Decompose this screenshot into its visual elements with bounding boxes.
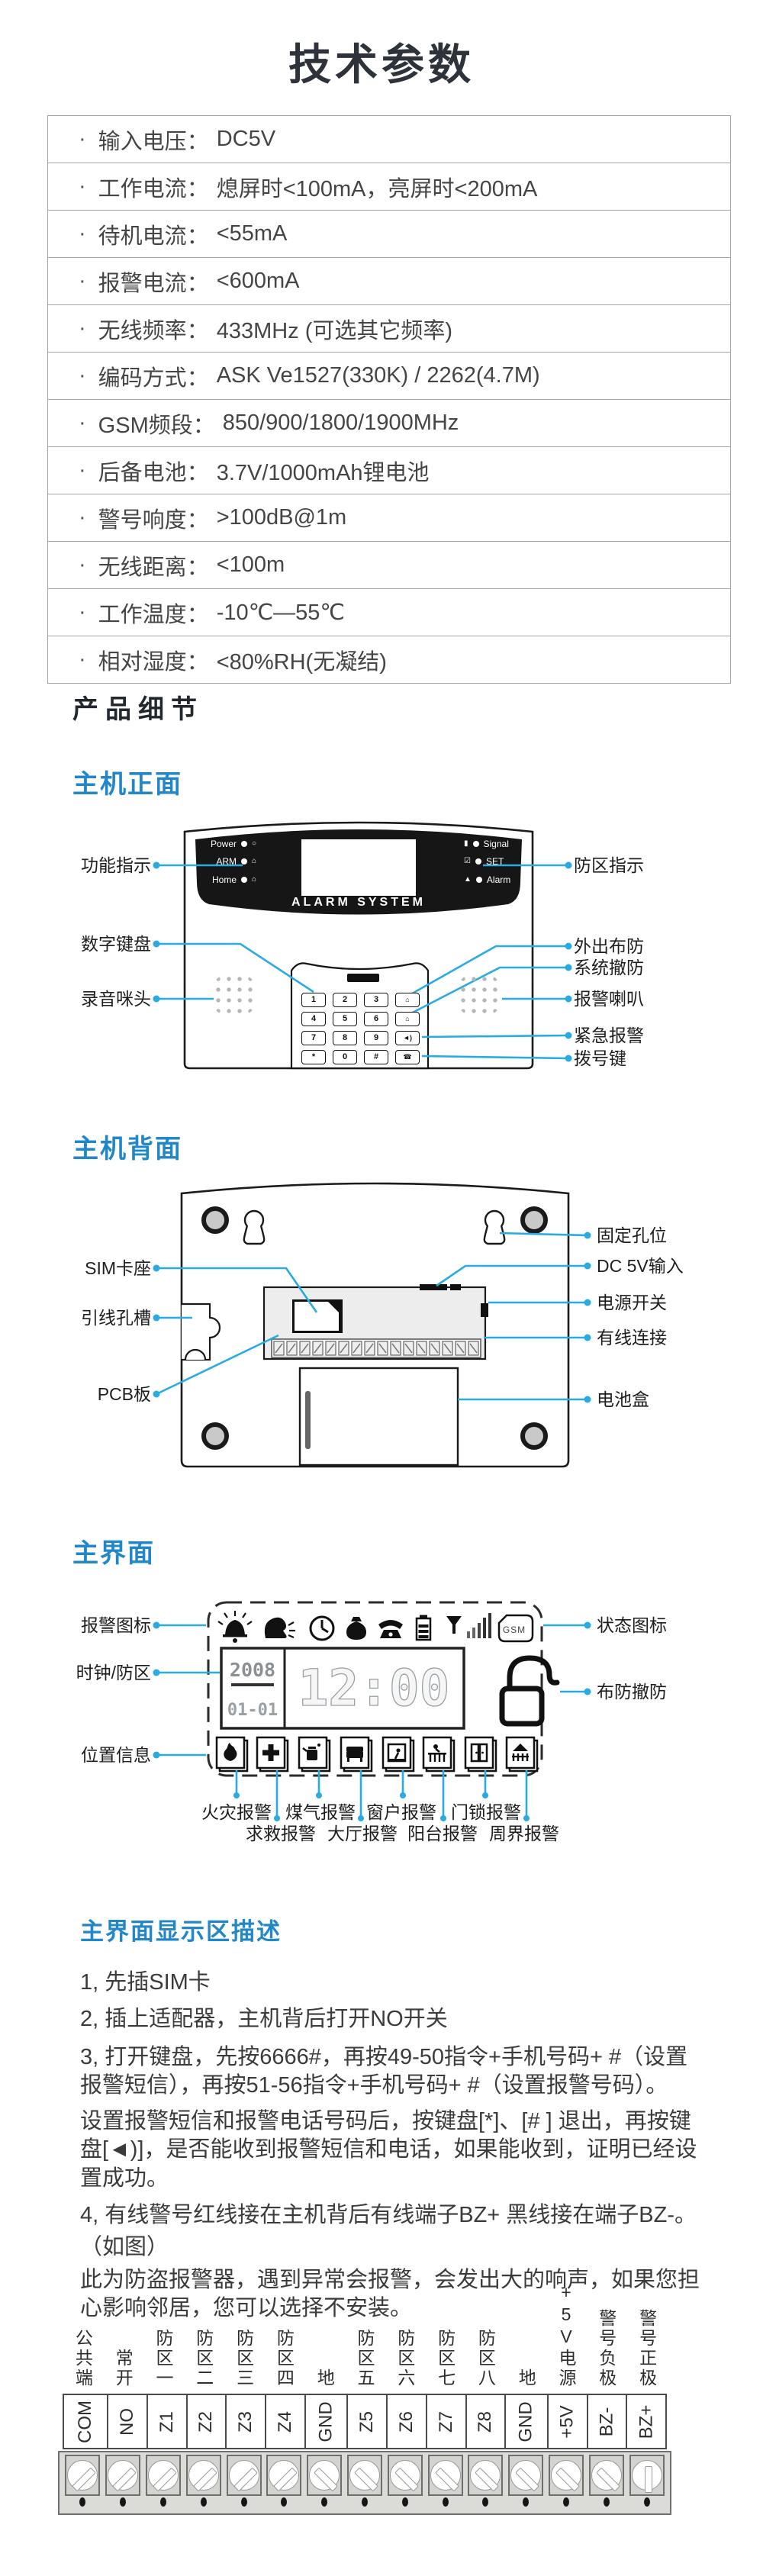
terminal-screw xyxy=(428,2455,463,2496)
right-speaker-grille xyxy=(456,971,503,1019)
screw-dot xyxy=(443,2497,449,2507)
terminal-cell: COM xyxy=(64,2395,107,2448)
terminal-screw xyxy=(388,2455,423,2496)
label-arm-disarm: 布防撤防 xyxy=(597,1682,667,1702)
keypad-key: ⌂ xyxy=(395,1012,420,1026)
terminal-cell: Z2 xyxy=(186,2395,226,2448)
terminal-screw xyxy=(347,2455,382,2496)
terminal-screw xyxy=(105,2455,140,2496)
home-led-dot xyxy=(241,877,247,883)
terminal-screw xyxy=(307,2455,342,2496)
screw-dot xyxy=(644,2497,650,2507)
terminal-cell: Z6 xyxy=(386,2395,426,2448)
spec-row: 报警电流：<600mA xyxy=(48,257,730,304)
spec-row: 无线频率：433MHz (可选其它频率) xyxy=(48,304,730,352)
terminal-screw xyxy=(146,2455,181,2496)
power-icon: ○ xyxy=(252,839,256,848)
terminal-cell: BZ- xyxy=(587,2395,626,2448)
brand-text: ALARM SYSTEM xyxy=(252,896,465,910)
set-led-dot xyxy=(475,858,481,865)
perimeter-zone-icon xyxy=(507,1737,537,1771)
terminal-cell: BZ+ xyxy=(626,2395,665,2448)
screw-dot xyxy=(604,2497,610,2507)
label-location-info: 位置信息 xyxy=(60,1745,151,1765)
hall-zone-icon xyxy=(341,1737,372,1771)
label-alarm-icons: 报警图标 xyxy=(60,1615,151,1635)
led-row-signal: ▮ Signal xyxy=(464,839,509,848)
terminal-code: Z2 xyxy=(195,2410,217,2432)
zone-label: 周界报警 xyxy=(482,1819,566,1845)
terminal-code: Z7 xyxy=(436,2410,457,2432)
spec-value: <100m xyxy=(217,552,285,578)
power-led-dot xyxy=(241,841,247,847)
fire-zone-icon xyxy=(217,1737,247,1771)
spec-label: 报警电流： xyxy=(98,266,209,298)
section-front-view: 主机正面 xyxy=(72,763,182,800)
terminal-cell: Z4 xyxy=(265,2395,304,2448)
terminal-cn-label: 防区一 xyxy=(153,2329,173,2388)
terminal-cn-label: 防区二 xyxy=(193,2329,214,2388)
sos-zone-icon xyxy=(257,1737,288,1771)
screw-dot xyxy=(241,2497,247,2507)
terminal-cn-label: 常开 xyxy=(112,2349,133,2388)
label-dc5v-input: DC 5V输入 xyxy=(597,1256,684,1276)
led-row-set: ☑ SET xyxy=(464,857,504,866)
label-power-switch: 电源开关 xyxy=(597,1293,667,1312)
spec-row: 警号响度：>100dB@1m xyxy=(48,494,730,541)
keypad-key: # xyxy=(364,1050,388,1064)
terminal-cell: Z1 xyxy=(146,2395,186,2448)
led-row-arm: ARM ⌂ xyxy=(204,857,256,866)
keypad-slot xyxy=(347,974,379,982)
spec-value: DC5V xyxy=(217,127,275,152)
spec-value: 433MHz (可选其它频率) xyxy=(217,313,452,345)
money-bag-icon xyxy=(346,1617,366,1640)
svg-text:GSM: GSM xyxy=(503,1624,526,1635)
instruction-line: 盘[◄)]，是否能收到报警短信和电话，如果能收到，证明已经设 xyxy=(80,2136,697,2162)
screw-dot xyxy=(402,2497,408,2507)
spec-label: 无线频率： xyxy=(98,313,209,345)
instruction-line: 置成功。 xyxy=(80,2165,169,2191)
terminal-cell: GND xyxy=(504,2395,546,2448)
power-switch xyxy=(481,1303,488,1317)
terminal-code: Z8 xyxy=(475,2410,496,2432)
spec-label: 后备电池： xyxy=(98,455,209,487)
terminal-cn-label: 警号正极 xyxy=(636,2309,657,2388)
screw-dot xyxy=(160,2497,166,2507)
terminal-code: GND xyxy=(516,2401,537,2442)
signal-led-dot xyxy=(473,841,479,847)
home-icon: ⌂ xyxy=(252,875,256,884)
terminal-code: BZ- xyxy=(596,2407,617,2436)
terminal-cn-label: 公共端 xyxy=(72,2329,92,2388)
terminal-code: BZ+ xyxy=(636,2404,657,2439)
gsm-sim-icon: GSM xyxy=(499,1615,533,1641)
lcd-date: 01-01 xyxy=(227,1701,278,1720)
signal-bars-icon xyxy=(446,1613,491,1638)
sim-card xyxy=(295,1302,339,1331)
terminal-cell: Z5 xyxy=(346,2395,386,2448)
terminal-cn-label: 防区八 xyxy=(475,2329,495,2388)
terminal-screw xyxy=(468,2455,503,2496)
label-zone-indicator: 防区指示 xyxy=(574,855,644,875)
terminal-cn-label: 地 xyxy=(515,2368,536,2388)
spec-label: 无线距离： xyxy=(98,549,209,581)
lcd-time: 12:00 xyxy=(298,1659,450,1718)
door-zone-icon xyxy=(465,1737,496,1771)
keypad-key: 6 xyxy=(364,1012,388,1026)
alarm-bell-icon xyxy=(218,1611,252,1643)
spec-label: 警号响度： xyxy=(98,502,209,534)
keypad-key: 9 xyxy=(364,1031,388,1045)
label-recording-mic: 录音咪头 xyxy=(60,989,151,1009)
spec-value: -10℃—55℃ xyxy=(217,599,345,626)
terminal-code: NO xyxy=(117,2408,138,2436)
gas-zone-icon xyxy=(299,1737,330,1771)
page-title: 技术参数 xyxy=(0,31,763,92)
keypad-key: 7 xyxy=(301,1031,326,1045)
label-status-icons: 状态图标 xyxy=(597,1615,667,1635)
left-speaker-grille xyxy=(211,971,258,1019)
spec-label: 输入电压： xyxy=(98,124,209,156)
zone-label: 阳台报警 xyxy=(401,1819,485,1845)
spec-table: 输入电压：DC5V工作电流：熄屏时<100mA，亮屏时<200mA待机电流：<5… xyxy=(47,115,731,684)
spec-value: <80%RH(无凝结) xyxy=(217,644,387,676)
terminal-code: +5V xyxy=(557,2405,578,2438)
set-icon: ☑ xyxy=(464,857,471,866)
terminal-cn-label: 防区五 xyxy=(354,2329,375,2388)
spec-value: 850/900/1800/1900MHz xyxy=(223,411,459,436)
label-function-indicator: 功能指示 xyxy=(60,855,151,875)
arm-led-dot xyxy=(241,858,247,865)
keypad-key: 8 xyxy=(333,1031,357,1045)
terminal-cn-label: 防区六 xyxy=(394,2329,415,2388)
keypad-key: 0 xyxy=(333,1050,357,1064)
instruction-line: 设置报警短信和报警电话号码后，按键盘[*]、[# ] 退出，再按键 xyxy=(80,2108,691,2134)
label-alarm-speaker: 报警喇叭 xyxy=(574,989,644,1009)
spec-value: <600mA xyxy=(217,269,300,294)
terminal-screw xyxy=(549,2455,584,2496)
spec-value: ASK Ve1527(330K) / 2262(4.7M) xyxy=(217,363,540,388)
spec-row: 工作温度：-10℃—55℃ xyxy=(48,588,730,636)
label-battery-box: 电池盒 xyxy=(597,1389,649,1409)
terminal-cn-label: 防区三 xyxy=(233,2329,254,2388)
spec-row: 后备电池：3.7V/1000mAh锂电池 xyxy=(48,446,730,494)
zone-icon-row xyxy=(217,1737,537,1771)
dc-input xyxy=(420,1284,461,1290)
label-emergency-alarm: 紧急报警 xyxy=(574,1026,644,1045)
terminal-code: Z5 xyxy=(356,2410,378,2432)
led-row-home: Home ⌂ xyxy=(204,875,256,884)
instruction-line: 心影响邻居，您可以选择不安装。 xyxy=(80,2295,412,2321)
spec-value: >100dB@1m xyxy=(217,505,347,530)
spec-row: 无线距离：<100m xyxy=(48,541,730,588)
terminal-cell: GND xyxy=(304,2395,346,2448)
instruction-line: 2, 插上适配器，主机背后打开NO开关 xyxy=(80,2006,448,2032)
keypad-key: ⌂ xyxy=(395,993,420,1007)
led-row-power: Power ○ xyxy=(204,839,256,848)
keypad-key: 4 xyxy=(301,1012,326,1026)
alarm-bell-icon: ▲ xyxy=(464,875,472,884)
label-away-arm: 外出布防 xyxy=(574,936,644,956)
signal-icon: ▮ xyxy=(464,839,468,848)
led-row-alarm: ▲ Alarm xyxy=(464,875,510,884)
instruction-line: 报警短信），再按51-56指令+手机号码+ #（设置报警号码）。 xyxy=(80,2072,668,2098)
spec-row: 待机电流：<55mA xyxy=(48,210,730,257)
instruction-line: （如图） xyxy=(80,2234,169,2260)
spec-label: GSM频段： xyxy=(98,407,215,440)
terminal-code: COM xyxy=(75,2401,96,2443)
balcony-zone-icon xyxy=(423,1737,454,1771)
spec-row: 编码方式：ASK Ve1527(330K) / 2262(4.7M) xyxy=(48,352,730,399)
instruction-line: 此为防盗报警器，遇到异常会报警，会发出大的响声，如果您担 xyxy=(80,2267,700,2293)
terminal-cell: Z8 xyxy=(465,2395,505,2448)
instruction-line: 1, 先插SIM卡 xyxy=(80,1969,211,1995)
terminal-cn-label: 地 xyxy=(314,2368,334,2388)
label-system-disarm: 系统撤防 xyxy=(574,958,644,977)
label-dial-key: 拨号键 xyxy=(574,1048,626,1068)
spec-value: 3.7V/1000mAh锂电池 xyxy=(217,455,430,487)
telephone-icon xyxy=(378,1620,403,1638)
terminal-code: Z1 xyxy=(156,2410,178,2432)
spec-row: 相对湿度：<80%RH(无凝结) xyxy=(48,636,730,683)
window-zone-icon xyxy=(383,1737,414,1771)
front-lcd-window xyxy=(301,839,416,896)
terminal-code: Z3 xyxy=(235,2410,256,2432)
label-wire-slot: 引线孔槽 xyxy=(60,1308,151,1328)
keypad-key: ☎ xyxy=(395,1050,420,1064)
terminal-cn-label: 防区七 xyxy=(435,2329,456,2388)
keypad-key: 5 xyxy=(333,1012,357,1026)
keypad-key: ◄) xyxy=(395,1031,420,1045)
terminal-screw xyxy=(266,2455,301,2496)
spec-row: 工作电流：熄屏时<100mA，亮屏时<200mA xyxy=(48,163,730,210)
terminal-cell: Z3 xyxy=(225,2395,265,2448)
section-ui-description: 主界面显示区描述 xyxy=(80,1912,282,1946)
section-product-details: 产品细节 xyxy=(72,688,204,726)
screw-dot xyxy=(362,2497,368,2507)
spec-label: 编码方式： xyxy=(98,360,209,392)
terminal-cell: Z7 xyxy=(426,2395,465,2448)
voice-icon xyxy=(265,1618,295,1638)
lcd-year: 2008 xyxy=(230,1659,275,1681)
back-view-diagram xyxy=(61,1160,702,1473)
spec-label: 相对湿度： xyxy=(98,644,209,676)
terminal-screw xyxy=(65,2455,100,2496)
label-wired-connection: 有线连接 xyxy=(597,1328,667,1348)
keypad-key: 3 xyxy=(364,993,388,1007)
alarm-led-dot xyxy=(476,877,482,883)
product-detail-page: 技术参数 输入电压：DC5V工作电流：熄屏时<100mA，亮屏时<200mA待机… xyxy=(0,0,763,2576)
keypad-key: * xyxy=(301,1050,326,1064)
instruction-line: 4, 有线警号红线接在主机背后有线端子BZ+ 黑线接在端子BZ-。 xyxy=(80,2202,697,2228)
terminal-screw xyxy=(508,2455,543,2496)
keypad-key: 2 xyxy=(333,993,357,1007)
terminal-screw xyxy=(629,2455,665,2496)
terminal-code: Z6 xyxy=(396,2410,417,2432)
label-numeric-keypad: 数字键盘 xyxy=(60,934,151,954)
section-main-ui: 主界面 xyxy=(72,1532,155,1570)
spec-value: 熄屏时<100mA，亮屏时<200mA xyxy=(217,171,538,203)
label-sim-socket: SIM卡座 xyxy=(60,1258,151,1278)
terminal-cn-label: 警号负极 xyxy=(596,2309,617,2388)
screw-dot xyxy=(563,2497,569,2507)
label-mounting-holes: 固定孔位 xyxy=(597,1225,667,1245)
keypad-key: 1 xyxy=(301,993,326,1007)
terminal-screw xyxy=(186,2455,221,2496)
instruction-line: 3, 打开键盘，先按6666#，再按49-50指令+手机号码+ #（设置 xyxy=(80,2044,687,2070)
zone-label: 求救报警 xyxy=(239,1819,323,1845)
spec-row: GSM频段：850/900/1800/1900MHz xyxy=(48,399,730,446)
terminal-code: GND xyxy=(316,2401,337,2442)
terminal-code: Z4 xyxy=(275,2410,296,2432)
terminal-cn-label: +5V电源 xyxy=(555,2282,576,2388)
spec-label: 待机电流： xyxy=(98,218,209,250)
terminal-cells: COMNOZ1Z2Z3Z4GNDZ5Z6Z7Z8GND+5VBZ-BZ+ xyxy=(63,2394,667,2449)
label-clock-zone: 时钟/防区 xyxy=(60,1663,151,1682)
spec-label: 工作电流： xyxy=(98,171,209,203)
open-padlock-icon xyxy=(502,1658,557,1724)
terminal-cn-label: 防区四 xyxy=(273,2329,294,2388)
terminal-cell: +5V xyxy=(547,2395,587,2448)
battery-box xyxy=(300,1368,458,1465)
clock-icon xyxy=(311,1617,333,1640)
zone-label: 大厅报警 xyxy=(320,1819,404,1845)
label-pcb-board: PCB板 xyxy=(60,1384,151,1404)
spec-value: <55mA xyxy=(217,221,288,246)
terminal-screw xyxy=(589,2455,624,2496)
spec-label: 工作温度： xyxy=(98,597,209,629)
spec-row: 输入电压：DC5V xyxy=(48,116,730,163)
battery-icon xyxy=(417,1615,430,1641)
terminal-screw xyxy=(227,2455,262,2496)
terminal-cell: NO xyxy=(107,2395,146,2448)
battery-slot xyxy=(305,1391,311,1449)
screw-dot xyxy=(201,2497,207,2507)
arm-icon: ⌂ xyxy=(252,857,256,866)
